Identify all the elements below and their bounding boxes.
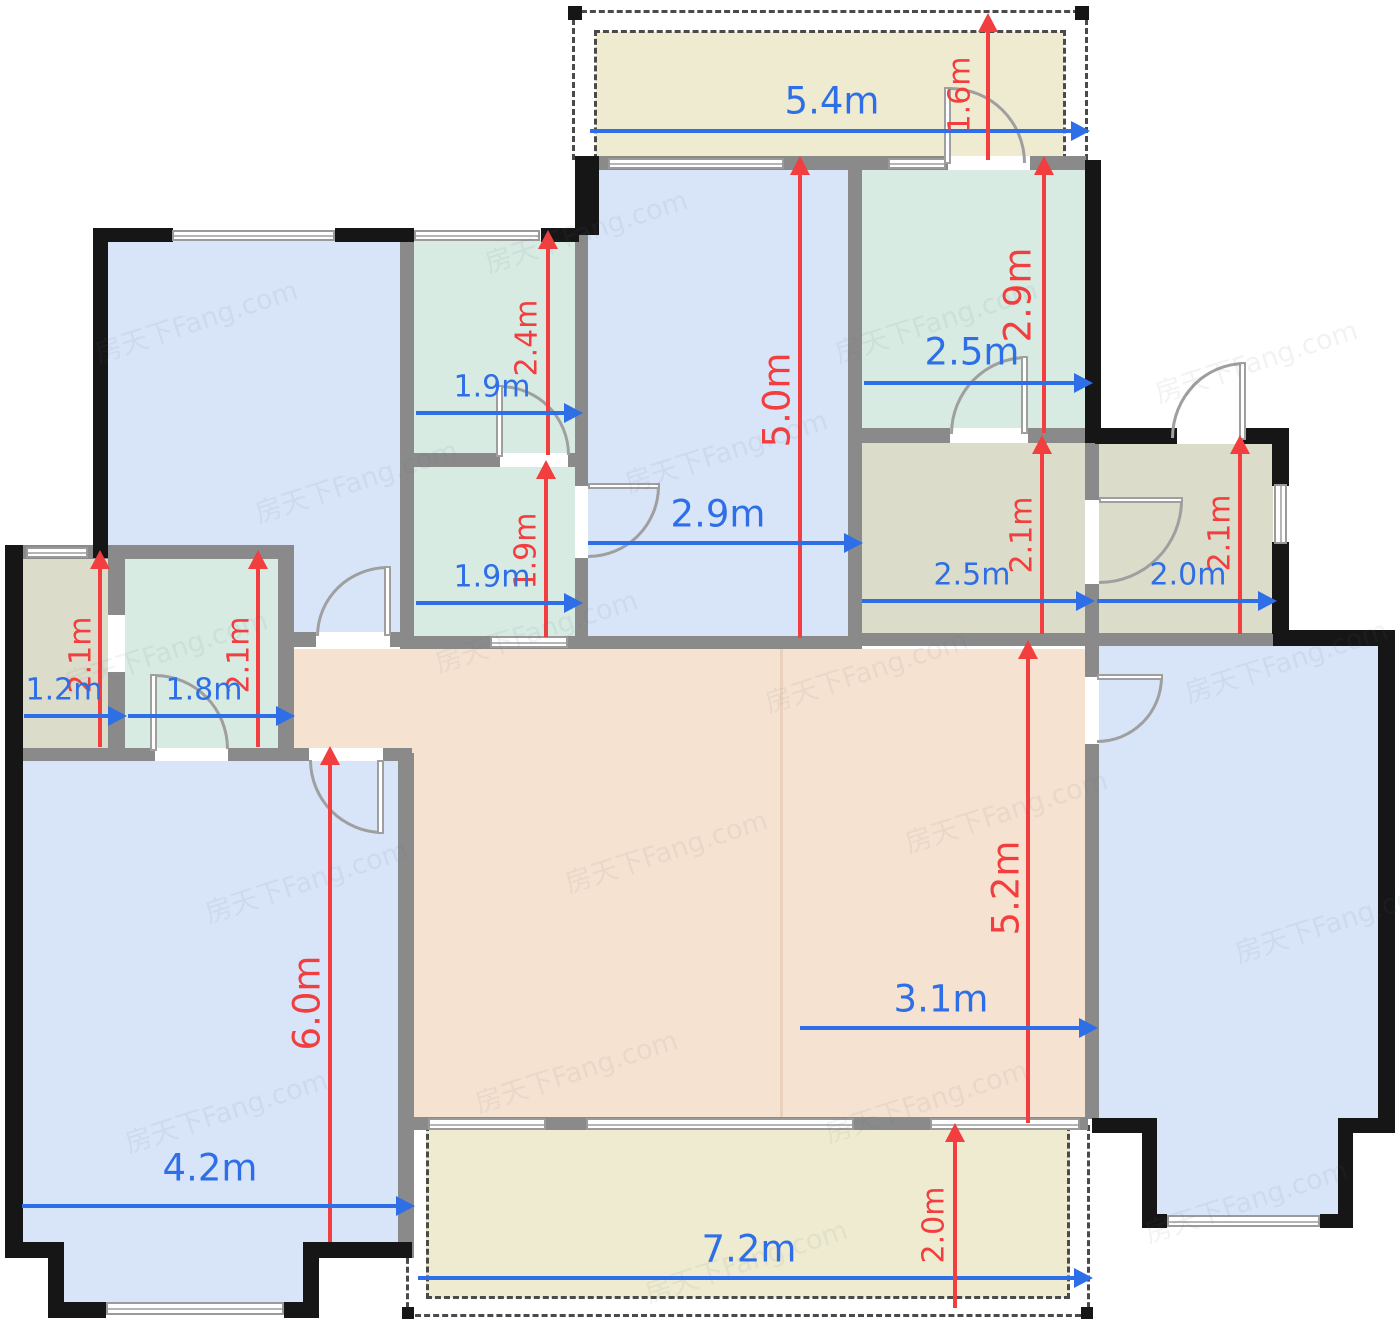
dim-label: 1.9m xyxy=(454,370,531,405)
dim-arrow-living-width xyxy=(800,1026,1083,1030)
dim-label: 1.8m xyxy=(166,673,243,708)
door-leaf xyxy=(150,674,157,751)
window xyxy=(608,158,784,169)
outline-corner-mark xyxy=(568,6,582,20)
floor-plan: 5.4m 1.6m 5.0m 2.9m 2.9m 2.5m 2.4m 1.9m … xyxy=(0,0,1400,1330)
window xyxy=(172,230,335,241)
wall xyxy=(575,233,588,649)
dim-arrow-utility-left-a-depth xyxy=(98,565,102,747)
dim-label: 2.5m xyxy=(925,331,1020,374)
exterior-wall xyxy=(93,228,108,558)
exterior-wall xyxy=(1338,1118,1353,1228)
wall xyxy=(848,158,862,649)
dim-label: 1.6m xyxy=(943,57,978,134)
dim-arrow-bedroom-bottom-left-width xyxy=(22,1204,400,1208)
living-room-seam xyxy=(780,649,783,1119)
outline-corner-mark xyxy=(1075,6,1089,20)
dim-label: 3.1m xyxy=(894,978,989,1021)
wall-pass-opening xyxy=(108,615,125,672)
window xyxy=(888,158,946,169)
wall xyxy=(398,753,414,1258)
exterior-wall xyxy=(93,228,173,242)
exterior-wall xyxy=(1085,160,1101,443)
dim-arrow-utility-right-b-depth xyxy=(1238,450,1242,634)
dim-arrow-room-top-right-width xyxy=(864,381,1078,385)
dim-arrow-utility-left-b-width xyxy=(128,714,280,718)
window xyxy=(586,1118,854,1130)
door-opening xyxy=(500,453,568,467)
wall xyxy=(400,228,414,649)
door-leaf xyxy=(1097,674,1163,680)
window xyxy=(106,1302,284,1315)
dim-label: 2.9m xyxy=(997,248,1040,343)
outline-corner-mark xyxy=(1081,1307,1093,1319)
window xyxy=(1274,484,1287,544)
exterior-wall xyxy=(1378,632,1395,1133)
exterior-wall xyxy=(575,156,599,235)
exterior-wall xyxy=(1142,1118,1157,1228)
dim-arrow-small-lower-depth xyxy=(544,475,548,637)
dim-arrow-utility-right-a-depth xyxy=(1040,450,1044,634)
dim-arrow-utility-left-b-depth xyxy=(256,565,260,747)
room-small-lower xyxy=(412,465,575,638)
window xyxy=(1167,1215,1320,1227)
exterior-wall xyxy=(303,1242,412,1258)
dim-arrow-bedroom-bottom-left-depth xyxy=(328,761,332,1242)
dim-arrow-small-lower-width xyxy=(416,601,568,605)
dim-label: 5.0m xyxy=(756,353,799,448)
dim-arrow-balcony-bottom-depth xyxy=(953,1138,957,1308)
wall xyxy=(855,633,1273,646)
room-living-dining xyxy=(294,649,1085,753)
wall xyxy=(412,636,862,649)
window xyxy=(26,547,88,558)
window xyxy=(490,636,568,648)
dim-label: 5.2m xyxy=(985,841,1028,936)
door-leaf xyxy=(588,483,660,489)
balcony-bottom-outline-inner xyxy=(426,1125,1070,1299)
dim-arrow-room-top-right-depth xyxy=(1042,171,1046,433)
dim-arrow-balcony-top-width xyxy=(590,129,1075,133)
dim-arrow-small-upper-width xyxy=(416,411,568,415)
exterior-wall xyxy=(48,1302,106,1318)
dim-label: 1.9m xyxy=(454,560,531,595)
door-opening xyxy=(575,486,588,558)
dim-arrow-balcony-bottom-width xyxy=(418,1276,1078,1280)
dim-label: 6.0m xyxy=(286,956,329,1051)
dim-label: 1.2m xyxy=(26,673,103,708)
exterior-wall xyxy=(1273,630,1395,646)
exterior-wall xyxy=(284,1302,319,1318)
dim-label: 4.2m xyxy=(163,1147,258,1190)
door-leaf xyxy=(377,760,384,834)
outline-corner-mark xyxy=(402,1307,414,1319)
dim-arrow-room-center-depth xyxy=(798,171,802,638)
dim-label: 7.2m xyxy=(702,1228,797,1271)
dim-arrow-utility-left-a-width xyxy=(24,714,112,718)
window xyxy=(414,230,540,241)
dim-label: 2.5m xyxy=(934,558,1011,593)
door-opening xyxy=(155,748,228,761)
door-leaf xyxy=(384,566,391,636)
dim-label: 5.4m xyxy=(785,80,880,123)
door-arc-entry xyxy=(1171,362,1245,438)
dim-arrow-balcony-top-door xyxy=(986,28,990,160)
dim-label: 2.4m xyxy=(510,300,545,377)
dim-label: 2.0m xyxy=(1150,558,1227,593)
exterior-wall xyxy=(1272,542,1289,634)
exterior-wall xyxy=(1272,440,1289,486)
window xyxy=(428,1118,546,1130)
exterior-wall xyxy=(335,228,414,242)
exterior-wall xyxy=(1095,428,1177,444)
room-bedroom-top-left xyxy=(108,240,400,547)
exterior-wall xyxy=(1092,1118,1157,1133)
dim-label: 2.9m xyxy=(671,493,766,536)
dim-arrow-utility-right-a-width xyxy=(862,599,1080,603)
door-opening xyxy=(1085,500,1099,584)
room-bedroom-bottom-left-bay xyxy=(64,1243,304,1303)
exterior-wall xyxy=(5,545,23,1258)
door-leaf xyxy=(1021,356,1028,434)
watermark: 房天下Fang.com xyxy=(1149,308,1362,410)
room-utility-right-a xyxy=(862,442,1085,635)
room-center xyxy=(588,168,848,638)
dim-arrow-small-upper-depth xyxy=(546,245,550,455)
exterior-wall xyxy=(1320,1214,1352,1228)
door-leaf xyxy=(1239,362,1246,440)
room-living-dining xyxy=(412,753,1085,1119)
dim-arrow-utility-right-b-width xyxy=(1097,599,1262,603)
room-bedroom-right-bay xyxy=(1157,1118,1338,1216)
dim-arrow-room-center-width xyxy=(588,541,848,545)
dim-label: 2.0m xyxy=(917,1187,952,1264)
door-leaf xyxy=(1099,497,1183,503)
